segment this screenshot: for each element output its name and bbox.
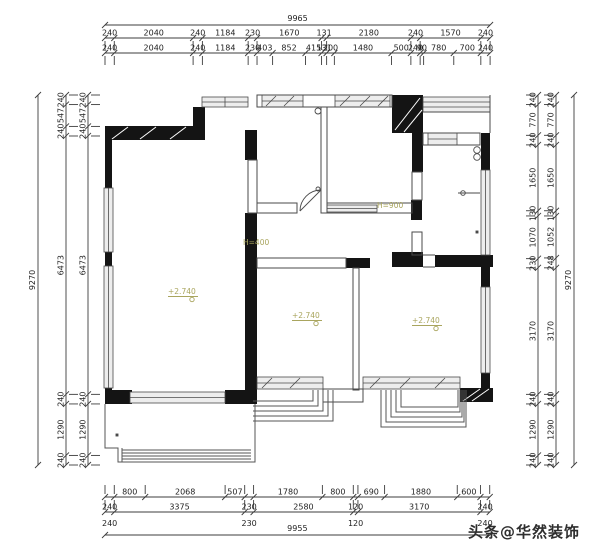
window-bath-right [481,170,490,255]
dim-label: 852 [281,44,296,53]
dim-stray-label: 120 [348,519,363,528]
dim-label: 3375 [169,503,189,512]
dim-label: 240 [57,453,66,468]
dim-label: 240 [478,44,493,53]
dim-label: 6473 [57,255,66,275]
dim-label: 130 [529,206,538,221]
dim-label: 1290 [529,419,538,439]
dim-label: 3170 [529,321,538,341]
bay-window-tracks-right [381,390,466,427]
svg-text:+2.740: +2.740 [412,316,440,325]
dim-label: 240 [102,44,117,53]
dim-label: 240 [547,392,556,407]
dim-label: 1290 [79,419,88,439]
dim-label: 507 [227,488,242,497]
dim-label: 1570 [440,29,460,38]
dim-label: 770 [529,112,538,127]
dim-label: 1650 [547,168,556,188]
dim-label: 800 [122,488,137,497]
window-interior-h900 [327,205,377,212]
dim-label: 690 [364,488,379,497]
dim-label: 1880 [411,488,431,497]
dim-label: 1052 [547,227,556,247]
dim-label: 1184 [215,29,235,38]
window-bed2-bottom [257,377,323,389]
dim-stray-label: 240 [102,519,117,528]
dim-label: 547 [57,108,66,123]
dim-label: 240 [529,392,538,407]
windows [104,95,490,403]
dim-label: 240 [529,453,538,468]
dim-label: 2580 [293,503,313,512]
dim-label: 1290 [57,419,66,439]
dim-label: 1290 [547,419,556,439]
bay-window-tracks-left [253,390,333,421]
basin-circle-top [474,147,481,154]
window-top-strip-left [202,97,248,107]
svg-text:+2.740: +2.740 [292,311,320,320]
dim-label: 131 [316,29,331,38]
dim-label: 240 [190,44,205,53]
watermark: 头条@华然装饰 [468,523,580,541]
dim-label: 240 [477,503,492,512]
dim-label: 780 [431,44,446,53]
corridor-height-label: H=400 [243,238,269,247]
dim-label: 770 [547,112,556,127]
dim-label: 1480 [353,44,373,53]
dim-label: 130 [547,206,556,221]
dim-label: 1070 [529,227,538,247]
dim-label: 240 [79,92,88,107]
dim-overall-label: 9270 [564,270,573,290]
dim-label: 230 [242,503,257,512]
level-marker-bed-mid: +2.740 [292,311,322,326]
dim-label: 1184 [215,44,235,53]
dim-label: 240 [79,124,88,139]
dim-label: 547 [79,108,88,123]
dim-label: 200 [323,44,338,53]
dim-label: 240 [79,392,88,407]
dim-label: 500 [394,44,409,53]
window-height-label: H=900 [377,201,403,210]
window-bed3-right [481,287,490,373]
dim-label: 240 [547,92,556,107]
dim-label: 3170 [409,503,429,512]
dim-label: 1650 [529,168,538,188]
dim-label: 240 [408,29,423,38]
dim-label: 90 [417,44,427,53]
dim-label: 2180 [359,29,379,38]
window-left-upper [104,188,113,252]
window-top-right-strip [423,97,490,112]
dim-label: 240 [79,453,88,468]
dim-label: 240 [57,92,66,107]
dim-label: 240 [529,132,538,147]
window-room2-top [335,95,390,107]
dim-label: 248 [547,255,556,270]
dim-label: 240 [102,503,117,512]
dim-label: 230 [529,256,538,271]
dim-label: 2040 [144,44,164,53]
dim-label: 1780 [278,488,298,497]
window-bath-top [428,133,457,145]
dim-label: 120 [348,503,363,512]
dim-label: 240 [547,453,556,468]
dim-label: 240 [102,29,117,38]
dim-label: 240 [547,132,556,147]
level-marker-living: +2.740 [168,287,198,302]
dim-label: 240 [478,29,493,38]
dim-label: 2068 [175,488,195,497]
basin-circle-bottom [474,154,481,161]
drain-circle-room1-top [315,108,321,114]
dim-label: 240 [57,124,66,139]
dim-label: 230 [245,29,260,38]
window-living-bottom [130,392,225,403]
balcony-outline [105,404,255,462]
dim-label: 700 [460,44,475,53]
dim-stray-label: 230 [242,519,257,528]
dim-overall-label: 9270 [28,270,37,290]
dim-label: 1670 [279,29,299,38]
window-room1-top [262,95,303,107]
dim-label: 240 [57,392,66,407]
floor-drain-dot-bath [476,231,478,233]
dim-label: 600 [461,488,476,497]
dim-label: 800 [330,488,345,497]
dim-label: 403 [257,44,272,53]
dim-label: 240 [190,29,205,38]
dim-overall-label: 9965 [287,14,307,23]
window-left-lower [104,266,113,388]
window-bed3-bottom [363,377,460,389]
svg-text:+2.740: +2.740 [168,287,196,296]
floor-plan-drawing: H=900 H=400 +2.740 +2.740 +2.740 9965240… [0,0,600,552]
entry-door-swing [300,190,321,211]
dim-label: 6473 [79,255,88,275]
level-marker-bed-right: +2.740 [412,316,442,331]
floor-plan-page: H=900 H=400 +2.740 +2.740 +2.740 9965240… [0,0,600,552]
dim-label: 240 [529,92,538,107]
floor-drain-dot-balcony [116,434,118,436]
dim-label: 3170 [547,321,556,341]
dim-overall-label: 9955 [287,524,307,533]
dim-label: 2040 [144,29,164,38]
